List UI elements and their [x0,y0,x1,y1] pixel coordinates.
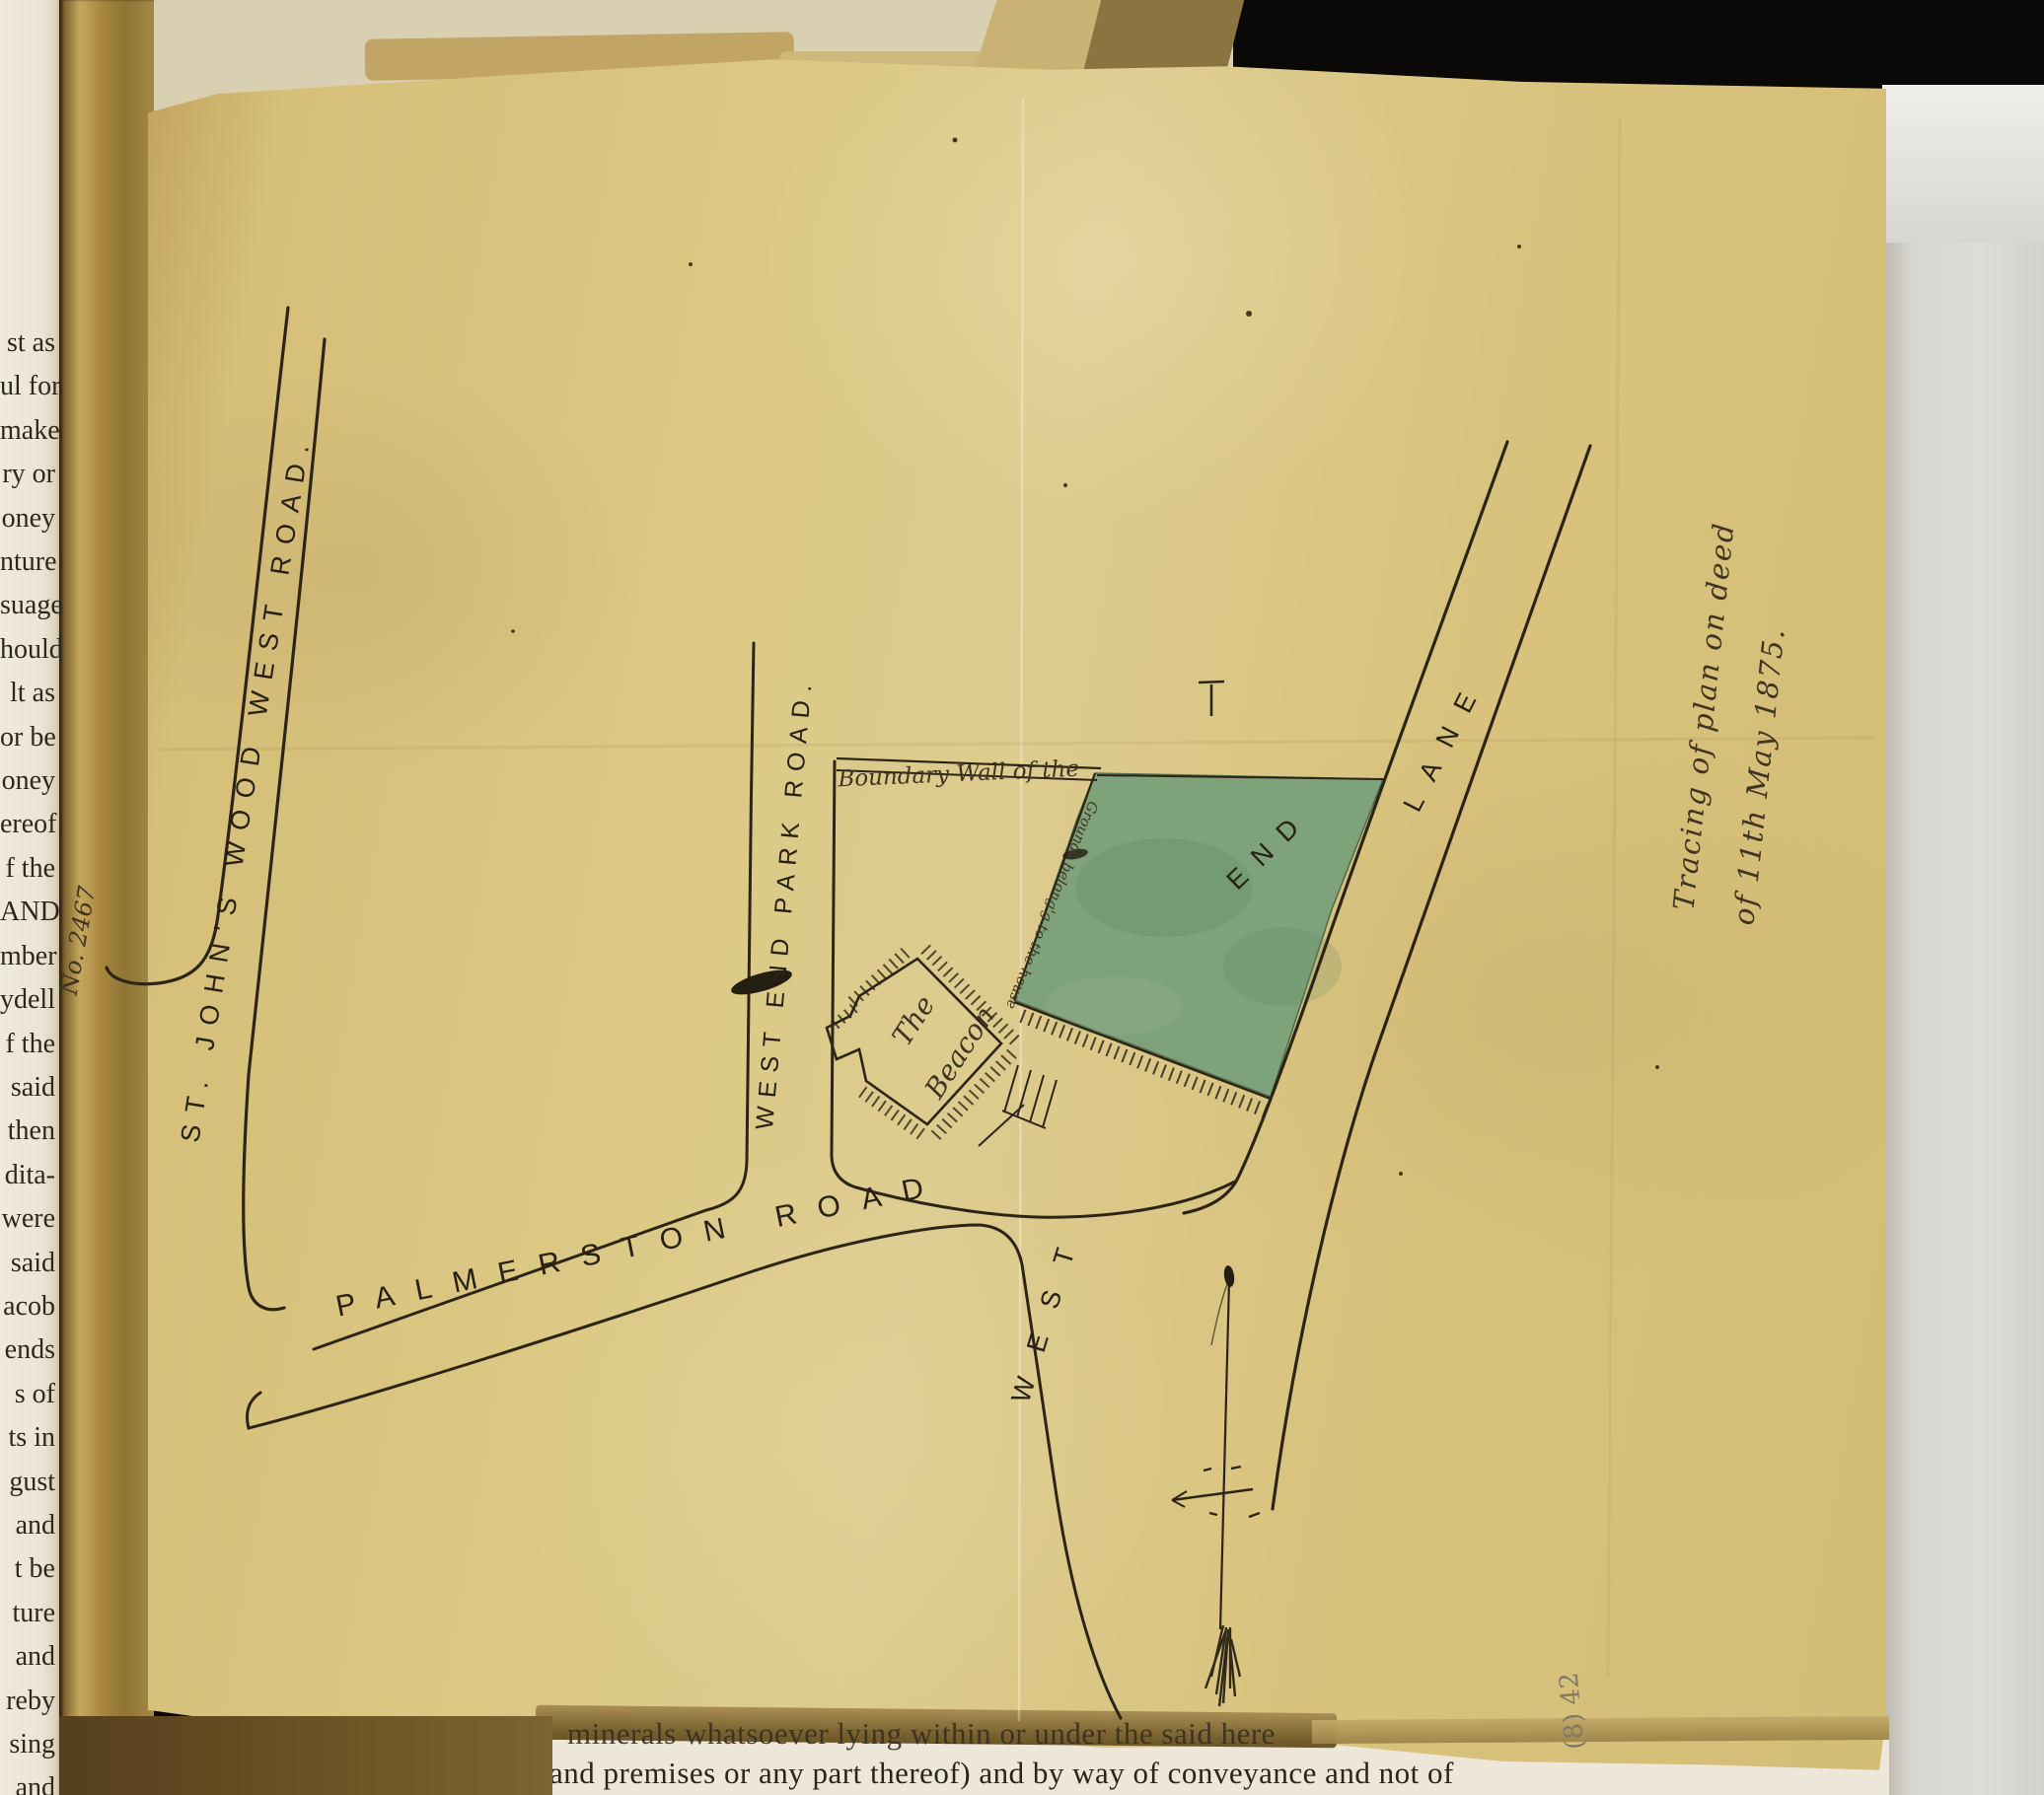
photographed-deed-book-page: and premises or any part thereof) and by… [0,0,2044,1795]
margin-fragment: said [0,1242,55,1285]
margin-fragment: nture [0,540,55,584]
margin-fragment: st as [0,322,55,365]
margin-fragment: reby [0,1680,55,1723]
margin-fragment: ends [0,1328,55,1372]
tracing-paper-sheet [148,54,1886,1775]
margin-fragment: lt as [0,672,55,715]
margin-fragment: hould [0,628,55,672]
margin-fragment: mber [0,935,55,978]
margin-fragment: suage [0,584,55,627]
margin-fragment: were [0,1197,55,1241]
gutter-shadow [59,1716,552,1795]
left-margin-text-column: st as ul for make ry or oney nture suage… [0,322,55,1795]
margin-fragment: s of [0,1373,55,1416]
margin-fragment: ts in [0,1416,55,1460]
margin-fragment: sing [0,1723,55,1766]
margin-fragment: ydell [0,978,55,1022]
margin-fragment: or be [0,716,55,759]
margin-fragment: acob [0,1285,55,1328]
printed-text-line: and premises or any part thereof) and by… [549,1756,1454,1791]
margin-fragment: dita- [0,1154,55,1197]
margin-fragment: ry or [0,453,55,496]
printed-text-line-through-paper: minerals whatsoever lying within or unde… [567,1716,1276,1752]
margin-fragment: gust [0,1461,55,1504]
margin-fragment: f the [0,847,55,891]
tracing-paper-fold-edge [1312,1716,1889,1744]
margin-fragment: t be [0,1547,55,1591]
book-gutter [59,0,154,1795]
background-surface-right [1882,85,2044,1795]
margin-fragment: oney [0,497,55,540]
margin-fragment: oney [0,759,55,803]
margin-fragment: ul for [0,365,55,408]
margin-fragment: and [0,1504,55,1547]
margin-fragment: ture [0,1592,55,1635]
margin-fragment: ereof [0,803,55,846]
margin-fragment: AND [0,891,55,934]
margin-fragment: then [0,1110,55,1153]
margin-fragment: f the [0,1023,55,1066]
margin-fragment: and [0,1635,55,1679]
margin-fragment: and [0,1766,55,1795]
margin-fragment: make [0,409,55,453]
margin-fragment: said [0,1066,55,1110]
